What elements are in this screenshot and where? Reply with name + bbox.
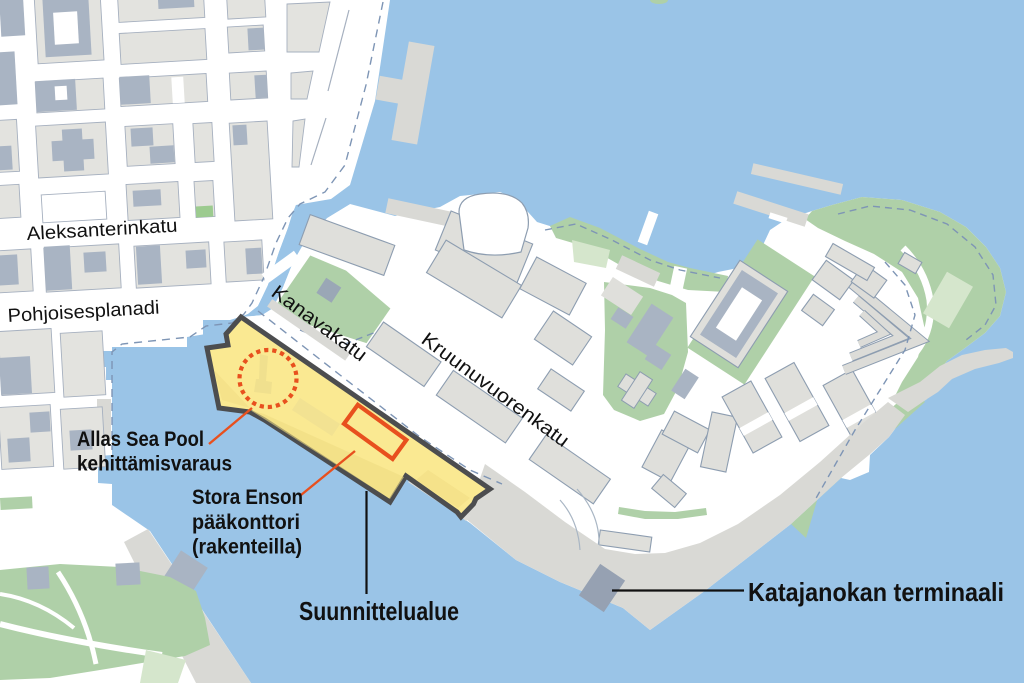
svg-text:(rakenteilla): (rakenteilla)	[192, 536, 302, 559]
svg-text:pääkonttori: pääkonttori	[192, 511, 300, 534]
svg-text:kehittämisvaraus: kehittämisvaraus	[77, 453, 232, 476]
svg-text:Allas Sea Pool: Allas Sea Pool	[77, 428, 204, 451]
svg-text:Katajanokan terminaali: Katajanokan terminaali	[748, 577, 1004, 607]
svg-text:Stora Enson: Stora Enson	[192, 486, 303, 509]
svg-text:Suunnittelualue: Suunnittelualue	[299, 596, 459, 626]
